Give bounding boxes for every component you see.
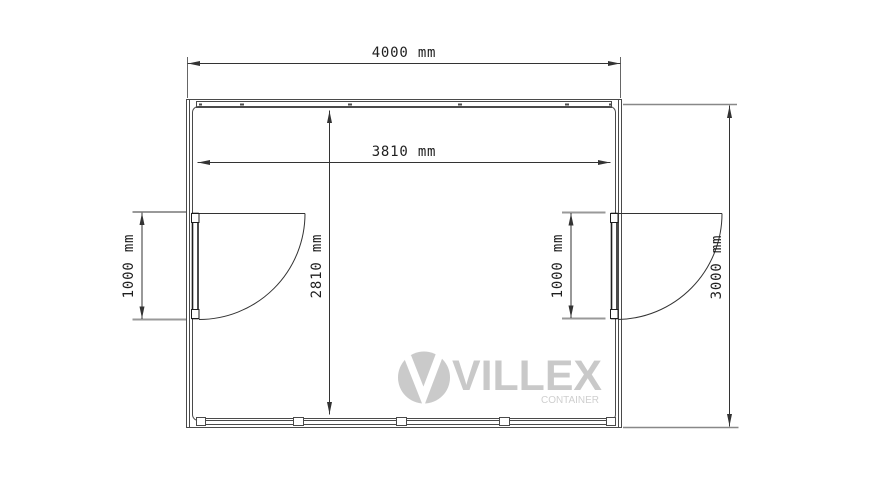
arrow-right-icon — [608, 61, 620, 66]
brand-logo: VILLEX CONTAINER — [398, 350, 602, 407]
door-hinge-block — [611, 214, 619, 223]
panel-tick — [348, 104, 352, 106]
panel-tick — [240, 104, 244, 106]
arrow-down-icon — [327, 402, 332, 414]
corner-connector — [197, 418, 206, 426]
panel-tick — [458, 104, 462, 106]
dimension-label-inner-width: 3810 mm — [372, 144, 437, 160]
dimension-label-outer-depth: 3000 mm — [709, 235, 725, 300]
panel-tick — [199, 104, 202, 106]
right-swing-door — [611, 214, 723, 320]
dimension-left-door: 1000 mm — [121, 212, 186, 320]
dimension-right-door: 1000 mm — [550, 213, 606, 319]
dimension-label-right-door: 1000 mm — [550, 234, 566, 299]
arrow-up-icon — [327, 111, 332, 123]
panel-connector — [294, 418, 304, 426]
arrow-down-icon — [569, 306, 574, 318]
panel-connector — [500, 418, 510, 426]
top-panel-joint-ticks — [199, 104, 612, 106]
left-swing-door — [192, 214, 306, 320]
brand-tagline: CONTAINER — [541, 395, 599, 406]
door-leaf — [193, 214, 199, 319]
arrow-left-icon — [188, 61, 200, 66]
panel-tick — [565, 104, 569, 106]
arrow-right-icon — [598, 160, 610, 165]
corner-connector — [607, 418, 616, 426]
panel-connector — [397, 418, 407, 426]
door-swing-arc — [618, 214, 722, 320]
door-hinge-block — [611, 310, 619, 319]
dimension-inner-depth: 2810 mm — [309, 111, 332, 415]
dimension-label-left-door: 1000 mm — [121, 234, 137, 299]
arrow-up-icon — [727, 106, 732, 118]
arrow-up-icon — [569, 214, 574, 226]
floor-plan-drawing: VILLEX CONTAINER — [0, 0, 872, 490]
arrow-down-icon — [727, 414, 732, 426]
dimension-outer-depth: 3000 mm — [623, 105, 739, 428]
floor-plan-canvas: VILLEX CONTAINER — [0, 0, 872, 490]
dimension-outer-width: 4000 mm — [188, 45, 621, 98]
brand-name: VILLEX — [452, 352, 602, 400]
panel-tick — [609, 104, 612, 106]
arrow-left-icon — [198, 160, 210, 165]
door-swing-arc — [199, 214, 305, 320]
dimension-label-outer-width: 4000 mm — [372, 45, 437, 61]
door-leaf — [612, 214, 618, 319]
dimension-inner-width: 3810 mm — [198, 144, 611, 165]
arrow-down-icon — [140, 307, 145, 319]
dimension-label-inner-depth: 2810 mm — [309, 234, 325, 299]
arrow-up-icon — [140, 213, 145, 225]
door-hinge-block — [192, 310, 200, 319]
door-hinge-block — [192, 214, 200, 223]
